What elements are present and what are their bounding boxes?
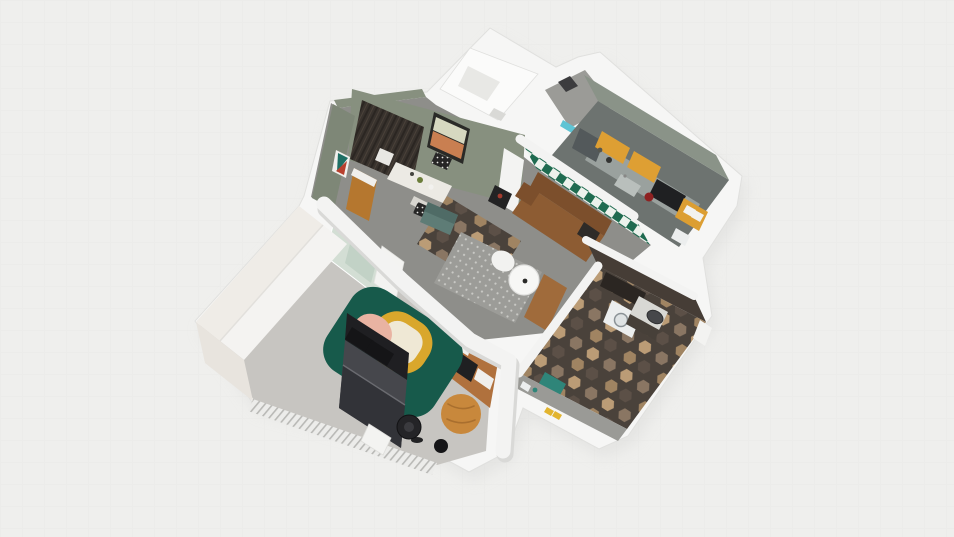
kitchen-kettle[interactable] <box>645 193 654 202</box>
kitchen-counter-item-b <box>598 148 603 153</box>
black-speaker[interactable] <box>434 439 448 453</box>
coffee-table-item <box>523 279 528 284</box>
kitchen-counter-item-a <box>606 157 612 163</box>
table-item-vase <box>410 172 414 176</box>
washer-door <box>615 314 628 327</box>
table-item-plate <box>428 184 433 189</box>
floorplan-3d-scene[interactable] <box>0 0 954 537</box>
floorplan-canvas[interactable] <box>0 0 954 537</box>
kitchen-faucet <box>623 174 626 177</box>
threshold-teal-item <box>533 388 538 393</box>
pouf-body <box>441 394 481 434</box>
side-table-red-item <box>498 194 503 199</box>
orange-pouf[interactable] <box>441 394 481 434</box>
table-item-plant <box>417 177 423 183</box>
fan-hub <box>404 422 414 432</box>
